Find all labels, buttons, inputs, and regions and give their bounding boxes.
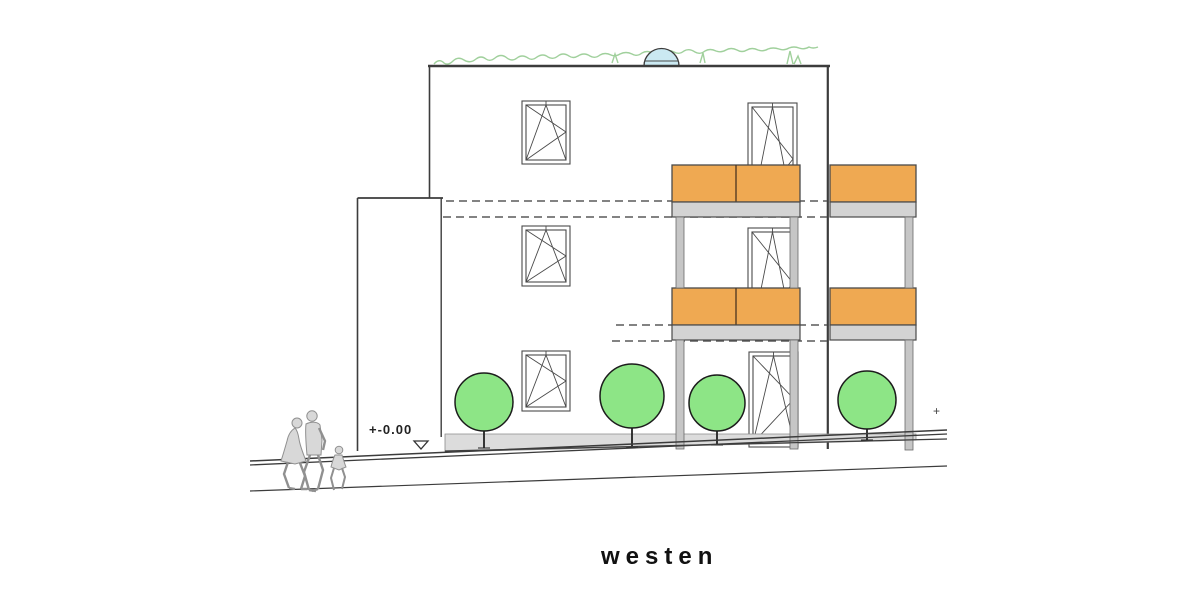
post-lower-3 (905, 340, 913, 450)
street-line (250, 466, 947, 491)
people-silhouettes (281, 411, 346, 491)
slab-lower-left (672, 325, 800, 340)
orientation-title: westen (601, 543, 718, 571)
post-upper-1 (676, 217, 684, 288)
slab-upper-right (830, 202, 916, 217)
person-man (304, 411, 325, 491)
tree-canopies (455, 364, 896, 431)
railing-upper-right (830, 165, 916, 202)
post-lower-1 (676, 340, 684, 449)
person-child (331, 446, 346, 490)
left-annex-wing (358, 198, 444, 451)
post-lower-2 (790, 340, 798, 449)
elevation-plus-mark: + (933, 404, 940, 418)
datum-label: +-0.00 (369, 422, 412, 437)
post-upper-2 (790, 217, 798, 288)
tree-1 (455, 373, 513, 431)
architectural-elevation-west: +-0.00 + westen (0, 0, 1200, 600)
tree-2 (600, 364, 664, 428)
person-woman (281, 418, 307, 489)
green-roof-grass (434, 47, 818, 64)
railing-lower-right (830, 288, 916, 325)
grass-line (434, 47, 818, 64)
datum-triangle-icon (414, 441, 428, 449)
window-ground-floor (522, 351, 570, 411)
post-upper-3 (905, 217, 913, 288)
tree-4 (838, 371, 896, 429)
window-middle-floor (522, 226, 570, 286)
window-top-floor (522, 101, 570, 164)
slab-lower-right (830, 325, 916, 340)
elevation-drawing (0, 0, 1200, 600)
grass-tufts (612, 51, 801, 64)
tree-3 (689, 375, 745, 431)
slab-upper-left (672, 202, 800, 217)
